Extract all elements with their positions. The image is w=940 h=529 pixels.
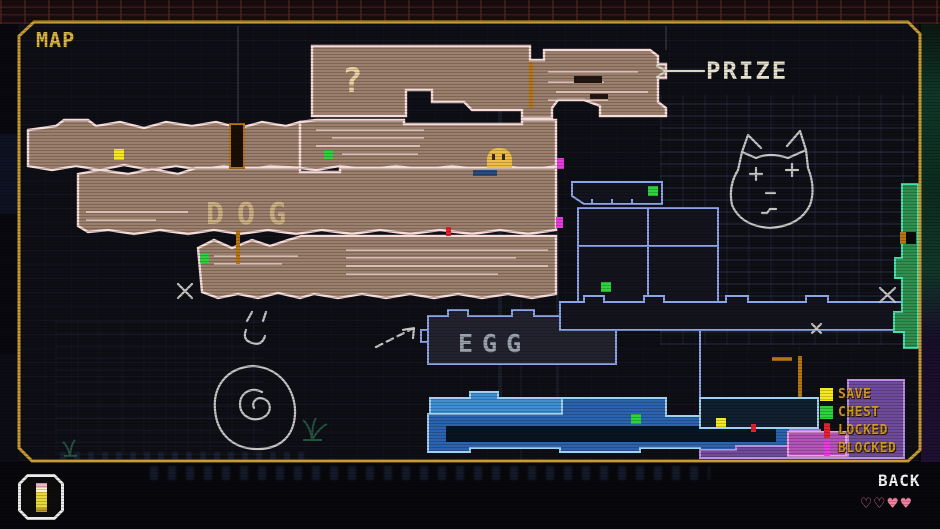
locked-marker xyxy=(446,227,451,236)
legend-row-chest: CHEST xyxy=(820,403,930,421)
locked-swatch-icon xyxy=(824,423,830,438)
locked-marker xyxy=(751,424,756,432)
blocked-marker xyxy=(556,217,563,228)
save-swatch-icon xyxy=(820,388,833,401)
green-room-group xyxy=(894,184,918,348)
tan-band-lower xyxy=(198,236,556,298)
heart-full-icon: ♥ xyxy=(901,494,914,514)
tan-band-center xyxy=(300,120,556,170)
map-legend: SAVE CHEST LOCKED BLOCKED xyxy=(820,385,930,457)
pipe xyxy=(772,357,792,361)
chest-marker xyxy=(648,186,658,196)
map-screen: ? PRIZE DOG EGG MAP SAVE CHEST LOCKED BL… xyxy=(0,0,940,529)
blocked-marker xyxy=(557,158,564,169)
legend-row-locked: LOCKED xyxy=(820,421,930,439)
legend-label: LOCKED xyxy=(838,423,888,438)
legend-label: BLOCKED xyxy=(838,441,896,456)
pipe xyxy=(529,62,533,108)
pencil-icon xyxy=(36,483,47,512)
heart-empty-icon: ♡ xyxy=(874,494,887,514)
map-canvas[interactable]: ? PRIZE DOG EGG xyxy=(0,0,940,529)
heart-empty-icon: ♡ xyxy=(861,494,874,514)
squiggle-doodle xyxy=(245,312,266,344)
blue-band-wide xyxy=(560,296,904,330)
cyan-room-group xyxy=(428,392,818,452)
save-marker xyxy=(716,418,726,428)
spiral-doodle xyxy=(215,366,295,449)
egg-label: EGG xyxy=(458,329,530,358)
back-button[interactable]: BACK xyxy=(878,471,921,490)
pipe xyxy=(236,230,240,264)
green-room xyxy=(894,184,918,348)
x-mark-doodle xyxy=(880,288,895,302)
question-mark-label: ? xyxy=(342,61,362,101)
map-title: MAP xyxy=(36,28,75,52)
chest-marker xyxy=(601,282,611,292)
legend-row-save: SAVE xyxy=(820,385,930,403)
x-mark-doodle xyxy=(178,284,192,298)
item-slot[interactable] xyxy=(18,474,64,520)
tan-rooms-top xyxy=(312,46,666,118)
health-hearts: ♡♡♥♥ xyxy=(861,494,914,514)
tan-band-dog xyxy=(78,168,556,234)
chest-marker xyxy=(324,150,333,159)
legend-row-blocked: BLOCKED xyxy=(820,439,930,457)
dashed-arrow-doodle xyxy=(376,329,412,347)
door-shaft xyxy=(230,124,244,168)
item-slot-inner xyxy=(21,477,61,517)
prize-label: PRIZE xyxy=(706,57,788,85)
save-marker xyxy=(114,149,124,160)
tan-band-left xyxy=(28,120,300,170)
chest-swatch-icon xyxy=(820,406,833,419)
dog-label: DOG xyxy=(206,197,299,232)
chest-marker xyxy=(200,254,209,263)
legend-label: CHEST xyxy=(838,405,880,420)
blocked-swatch-icon xyxy=(824,441,830,456)
heart-full-icon: ♥ xyxy=(888,494,901,514)
legend-label: SAVE xyxy=(838,387,871,402)
chest-marker xyxy=(631,414,641,424)
cyan-room-light xyxy=(430,392,562,414)
cat-face-doodle xyxy=(731,131,813,228)
